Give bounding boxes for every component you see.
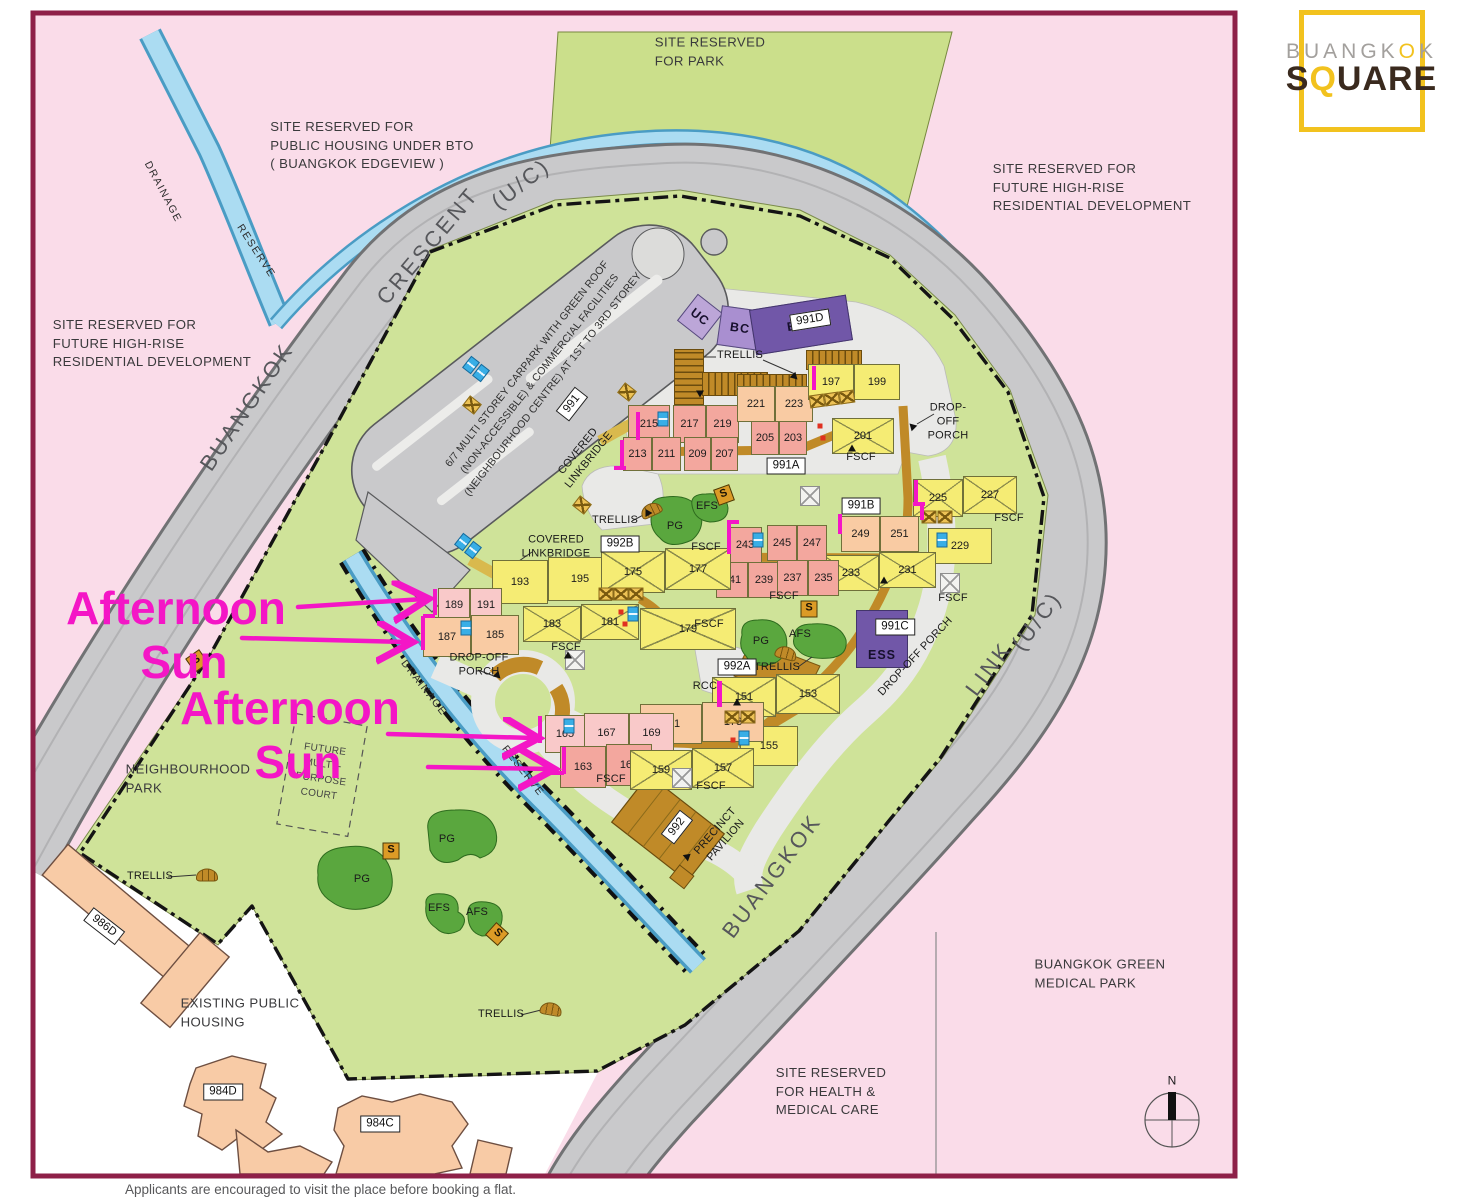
staircase-icon xyxy=(461,621,472,636)
block-number-label: 159 xyxy=(652,764,670,776)
block-number-label: 249 xyxy=(851,528,869,540)
label-line: DROP- xyxy=(928,401,969,415)
block-number-label: 219 xyxy=(713,418,731,430)
annotation-highlight-mark xyxy=(421,616,425,650)
annotation-highlight-mark xyxy=(423,614,435,618)
map-label-fscf: FSCF xyxy=(994,512,1024,526)
block-number-label: 217 xyxy=(680,418,698,430)
label-line: LINKBRIDGE xyxy=(522,547,591,561)
block-249: 249 xyxy=(841,516,880,552)
block-label-box-986d: 986D xyxy=(83,907,125,945)
map-label-fscf: FSCF xyxy=(769,590,799,604)
block-number-label: 207 xyxy=(715,448,733,460)
map-label-site-reserved-for: SITE RESERVED FORPUBLIC HOUSING UNDER BT… xyxy=(270,118,474,174)
block-number-label: 229 xyxy=(951,540,969,552)
direction-arrow-icon xyxy=(683,851,694,862)
marker-dot-icon xyxy=(619,610,624,615)
block-number-label: 185 xyxy=(486,629,504,641)
annotation-highlight-mark xyxy=(920,504,924,520)
block-number-label: 189 xyxy=(445,599,463,611)
label-line: HOUSING xyxy=(181,1013,300,1032)
block-201: 201 xyxy=(832,418,894,454)
label-line: RESIDENTIAL DEVELOPMENT xyxy=(53,353,252,372)
map-label-trellis: TRELLIS xyxy=(127,870,173,884)
label-line: EXISTING PUBLIC xyxy=(181,994,300,1013)
direction-arrow-icon xyxy=(696,391,704,398)
block-label-box-991b: 991B xyxy=(842,498,881,515)
crossed-box-icon xyxy=(599,588,614,601)
letter-s-box-icon: S xyxy=(485,922,509,946)
buangkok-square-logo: BUANGKOK SQUARE xyxy=(1250,0,1473,140)
logo-accent-letter: Q xyxy=(1309,60,1336,98)
block-209: 209 xyxy=(684,437,711,471)
map-label-buangkok-green: BUANGKOK GREENMEDICAL PARK xyxy=(1035,955,1166,992)
block-183: 183 xyxy=(523,606,581,642)
block-number-label: 225 xyxy=(929,492,947,504)
staircase-icon xyxy=(937,533,948,548)
map-label-fscf: FSCF xyxy=(846,451,876,465)
map-label-efs: EFS xyxy=(428,902,450,916)
map-label-precinct: PRECINCTPAVILION xyxy=(692,805,751,867)
crossed-box-icon xyxy=(938,511,953,524)
block-number-label: 203 xyxy=(784,432,802,444)
map-label-trellis: TRELLIS xyxy=(478,1008,524,1022)
block-number-label: 245 xyxy=(773,537,791,549)
letter-s-box-icon: S xyxy=(383,843,400,860)
block-203: 203 xyxy=(779,421,807,455)
block-205: 205 xyxy=(751,421,779,455)
block-221: 221 xyxy=(737,386,775,422)
label-line: (NEIGHBOURHOOD CENTRE) AT 1ST TO 3RD STO… xyxy=(460,268,646,499)
label-line: PUBLIC HOUSING UNDER BTO xyxy=(270,137,474,156)
label-line: BUANGKOK GREEN xyxy=(1035,955,1166,974)
map-caption: Applicants are encouraged to visit the p… xyxy=(125,1182,516,1197)
block-245: 245 xyxy=(767,525,797,561)
direction-arrow-icon xyxy=(848,445,856,452)
block-number-label: 183 xyxy=(543,618,561,630)
crossed-box-icon xyxy=(629,588,644,601)
afternoon-sun-annotation-afternoon: Afternoon xyxy=(180,681,400,735)
map-label-efs: EFS xyxy=(696,500,718,514)
block-label-box-992b: 992B xyxy=(601,536,640,553)
map-label-afs: AFS xyxy=(789,628,811,642)
block-number-label: 247 xyxy=(803,537,821,549)
block-number-label: 237 xyxy=(783,572,801,584)
map-label-n: N xyxy=(1168,1074,1177,1089)
direction-arrow-icon xyxy=(907,421,918,432)
label-line: SITE RESERVED FOR xyxy=(270,118,474,137)
block-227: 227 xyxy=(963,476,1017,514)
marker-dot-icon xyxy=(731,738,736,743)
map-label-link: LINK xyxy=(960,637,1017,701)
block-number-label: 191 xyxy=(477,599,495,611)
block-number-label: 235 xyxy=(814,572,832,584)
label-line: SITE RESERVED xyxy=(776,1064,887,1083)
block-number-label: 181 xyxy=(601,616,619,628)
label-line: FOR PARK xyxy=(655,52,766,71)
trellis-fan-icon xyxy=(774,644,799,662)
label-line: FOR HEALTH & xyxy=(776,1083,887,1102)
map-label-pg: PG xyxy=(753,635,769,649)
block-label-box-991a: 991A xyxy=(767,458,806,475)
marker-dot-icon xyxy=(821,436,826,441)
crossed-box-icon xyxy=(741,711,756,724)
block-label-box-991: 991 xyxy=(556,386,589,421)
block-number-label: 205 xyxy=(756,432,774,444)
label-line: MEDICAL PARK xyxy=(1035,974,1166,993)
block-number-label: 169 xyxy=(642,727,660,739)
block-207: 207 xyxy=(711,437,738,471)
map-label-site-reserved-for: SITE RESERVED FORFUTURE HIGH-RISERESIDEN… xyxy=(993,160,1192,216)
block-number-label: 153 xyxy=(799,688,817,700)
trellis-fan-icon xyxy=(539,1001,563,1018)
block-number-label: ESS xyxy=(868,648,896,662)
label-line: ( BUANGKOK EDGEVIEW ) xyxy=(270,155,474,174)
block-label-box-991c: 991C xyxy=(875,619,915,636)
crossed-box-icon xyxy=(839,390,856,405)
annotation-highlight-mark xyxy=(717,681,722,707)
block-label-box-984c: 984C xyxy=(360,1116,400,1133)
vent-shaft-icon xyxy=(800,486,820,506)
map-label-drainage: DRAINAGE xyxy=(398,658,449,719)
block-number-label: 231 xyxy=(898,564,916,576)
label-line: SITE RESERVED xyxy=(655,33,766,52)
label-line: FUTURE HIGH-RISE xyxy=(993,179,1192,198)
block-number-label: 195 xyxy=(571,573,589,585)
annotation-highlight-mark xyxy=(620,440,624,468)
map-label-covered: COVEREDLINKBRIDGE xyxy=(522,533,591,561)
block-number-label: 223 xyxy=(785,398,803,410)
afternoon-sun-annotation-sun: Sun xyxy=(255,735,342,789)
staircase-icon xyxy=(739,731,750,746)
label-line: PARK xyxy=(126,779,251,798)
block-number-label: 233 xyxy=(842,567,860,579)
label-line: SITE RESERVED FOR xyxy=(53,316,252,335)
map-label-trellis: TRELLIS xyxy=(717,349,763,363)
label-line: SITE RESERVED FOR xyxy=(993,160,1192,179)
map-label-site-reserved: SITE RESERVEDFOR PARK xyxy=(655,33,766,70)
map-label-pg: PG xyxy=(667,520,683,534)
annotation-highlight-mark xyxy=(433,589,437,615)
crossed-box-icon xyxy=(809,394,826,409)
label-line: RESIDENTIAL DEVELOPMENT xyxy=(993,197,1192,216)
map-label-trellis: TRELLIS xyxy=(754,661,800,675)
annotation-highlight-mark xyxy=(636,412,640,440)
map-label-fscf: FSCF xyxy=(694,618,724,632)
staircase-icon xyxy=(628,607,639,622)
label-line: OFF xyxy=(928,415,969,429)
annotation-highlight-mark xyxy=(812,366,816,390)
annotation-highlight-mark xyxy=(727,520,739,524)
staircase-icon xyxy=(658,412,669,427)
block-251: 251 xyxy=(880,516,919,552)
map-label-crescent: CRESCENT xyxy=(371,182,484,310)
block-247: 247 xyxy=(797,525,827,561)
block-number-label: UC xyxy=(688,305,712,328)
block-153: 153 xyxy=(776,674,840,714)
annotation-highlight-mark xyxy=(562,747,566,774)
block-label-box-992a: 992A xyxy=(718,659,757,676)
block-number-label: 193 xyxy=(511,576,529,588)
map-label-u-c: (U/C) xyxy=(1006,586,1067,656)
marker-dot-icon xyxy=(623,622,628,627)
vent-shaft-icon xyxy=(940,573,960,593)
map-label-covered: COVEREDLINKBRIDGE xyxy=(552,421,617,492)
map-label-fscf: FSCF xyxy=(696,780,726,794)
direction-arrow-icon xyxy=(646,509,653,517)
block-211: 211 xyxy=(652,437,681,471)
map-label-trellis: TRELLIS xyxy=(592,514,638,528)
block-number-label: 215 xyxy=(640,418,658,430)
direction-arrow-icon xyxy=(880,577,888,584)
crossed-box-icon xyxy=(617,382,637,401)
block-number-label: 227 xyxy=(981,489,999,501)
map-label-fscf: FSCF xyxy=(691,541,721,555)
map-label-6-7-multi-storey-carpark-with-green-roof: 6/7 MULTI STOREY CARPARK WITH GREEN ROOF… xyxy=(434,248,645,499)
block-213: 213 xyxy=(623,437,652,471)
map-label-layer: 2152172192132112092072212232052031971992… xyxy=(0,0,1473,1200)
annotation-highlight-mark xyxy=(914,480,918,504)
block-number-label: 187 xyxy=(438,631,456,643)
crossed-box-icon xyxy=(824,392,841,407)
map-label-fscf: FSCF xyxy=(596,773,626,787)
map-label-drainage: DRAINAGE xyxy=(142,159,184,224)
map-label-u-c: (U/C) xyxy=(486,153,555,215)
label-line: FUTURE HIGH-RISE xyxy=(53,335,252,354)
map-label-pg: PG xyxy=(354,873,370,887)
block-number-label: 177 xyxy=(689,563,707,575)
staircase-icon xyxy=(564,719,575,734)
direction-arrow-icon xyxy=(733,699,741,706)
block-number-label: BC xyxy=(729,320,751,337)
map-label-reserve: RESERVE xyxy=(499,743,546,799)
map-label-rcc: RCC xyxy=(693,680,717,694)
map-label-site-reserved: SITE RESERVEDFOR HEALTH &MEDICAL CARE xyxy=(776,1064,887,1120)
block-label-box-992: 992 xyxy=(661,809,694,844)
logo-wordmark-line2: SQUARE xyxy=(1250,60,1473,99)
block-number-label: 213 xyxy=(628,448,646,460)
crossed-box-icon xyxy=(725,711,740,724)
marker-dot-icon xyxy=(818,424,823,429)
map-label-site-reserved-for: SITE RESERVED FORFUTURE HIGH-RISERESIDEN… xyxy=(53,316,252,372)
label-line: MEDICAL CARE xyxy=(776,1101,887,1120)
label-line: PORCH xyxy=(928,429,969,443)
crossed-box-icon xyxy=(572,495,592,514)
label-line: NEIGHBOURHOOD xyxy=(126,760,251,779)
map-label-pg: PG xyxy=(439,833,455,847)
annotation-highlight-mark xyxy=(838,514,842,534)
map-label-neighbourhood: NEIGHBOURHOODPARK xyxy=(126,760,251,797)
block-185: 185 xyxy=(471,615,519,655)
block-235: 235 xyxy=(808,560,839,596)
annotation-highlight-mark xyxy=(548,771,564,775)
block-number-label: 157 xyxy=(714,762,732,774)
staircase-icon xyxy=(753,533,764,548)
block-199: 199 xyxy=(854,364,900,400)
annotation-highlight-mark xyxy=(727,524,731,554)
block-number-label: 201 xyxy=(854,430,872,442)
map-label-reserve: RESERVE xyxy=(234,222,277,280)
block-number-label: 221 xyxy=(747,398,765,410)
block-number-label: 163 xyxy=(574,761,592,773)
annotation-highlight-mark xyxy=(538,716,542,743)
map-label-fscf: FSCF xyxy=(938,592,968,606)
block-number-label: 197 xyxy=(822,376,840,388)
block-number-label: 199 xyxy=(868,376,886,388)
block-number-label: 239 xyxy=(755,574,773,586)
label-line: DROP-OFF xyxy=(449,651,508,665)
block-number-label: 243 xyxy=(736,539,754,551)
afternoon-sun-annotation-afternoon: Afternoon xyxy=(66,581,286,635)
vent-shaft-icon xyxy=(672,768,692,788)
crossed-box-icon xyxy=(614,588,629,601)
block-number-label: 211 xyxy=(658,448,676,460)
letter-s-box-icon: S xyxy=(801,601,818,618)
block-number-label: 167 xyxy=(597,727,615,739)
map-label-drop: DROP-OFFPORCH xyxy=(928,401,969,442)
block-number-label: 209 xyxy=(688,448,706,460)
block-number-label: 175 xyxy=(624,566,642,578)
map-label-afs: AFS xyxy=(466,906,488,920)
direction-arrow-icon xyxy=(564,652,572,659)
map-label-existing-public: EXISTING PUBLICHOUSING xyxy=(181,994,300,1031)
block-uc: UC xyxy=(677,294,723,340)
block-label-box-984d: 984D xyxy=(203,1084,243,1101)
site-plan-page: 2152172192132112092072212232052031971992… xyxy=(0,0,1473,1200)
block-number-label: 251 xyxy=(890,528,908,540)
label-line: COVERED xyxy=(522,533,591,547)
trellis-fan-icon xyxy=(196,869,218,882)
